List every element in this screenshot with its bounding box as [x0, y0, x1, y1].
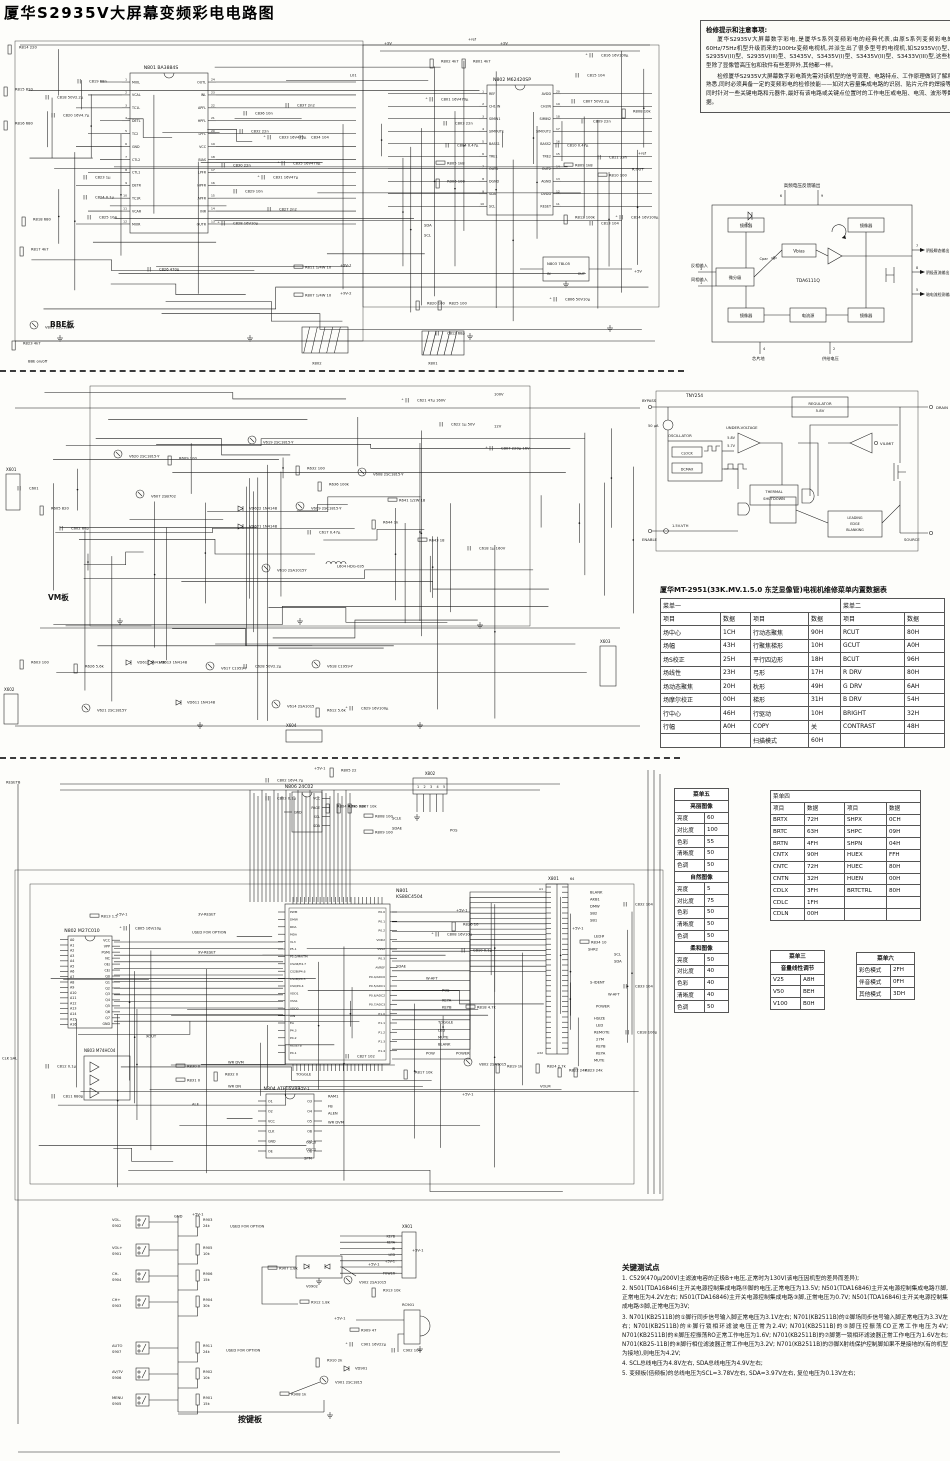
junction-dot — [570, 998, 572, 1000]
wire — [796, 510, 828, 523]
table-cell: A0H — [721, 720, 751, 734]
wire — [32, 323, 36, 327]
schematic-label: 反相输入 — [691, 262, 709, 269]
schematic-label: V607 2SB702 — [151, 494, 176, 498]
schematic-label: 5.7V — [727, 444, 735, 448]
schematic-label: R817 4k7 — [31, 247, 49, 251]
inverter-symbol — [90, 1088, 99, 1098]
pin-number: 16 — [211, 181, 215, 185]
table-cell: 40 — [705, 989, 729, 1001]
table-cell: 50 — [705, 918, 729, 930]
schematic-label: R802 4k7 — [441, 59, 459, 63]
schematic-label: TOGGLE — [437, 1020, 454, 1024]
pin-name: VSS1 — [290, 999, 298, 1003]
schematic-label: XOUT — [146, 1034, 157, 1038]
button-ref: S901 — [112, 1252, 121, 1256]
wire — [360, 470, 364, 474]
schematic-label: L01 — [350, 73, 357, 77]
resistor-symbol — [452, 922, 455, 931]
schematic-label: V902 2SA1015 — [359, 1280, 387, 1284]
table-column-header: 数据 — [887, 802, 921, 814]
connector-body — [6, 474, 20, 510]
pin-number: 5 — [916, 288, 918, 292]
pin-name: MDA — [290, 932, 298, 936]
table-cell: 80H — [887, 885, 921, 897]
schematic-label: R605 820 — [51, 506, 69, 510]
terminal — [648, 529, 651, 532]
schematic-label: +5V — [634, 269, 642, 273]
schematic-label: USED FOR OPTION — [192, 930, 227, 934]
schematic-label: +5V-1 — [334, 1316, 345, 1320]
resistor-symbol — [598, 173, 607, 176]
resistor-symbol — [296, 466, 299, 475]
table-cell: 场S校正 — [661, 653, 721, 667]
resistor-symbol — [622, 109, 625, 118]
connector-label: X601 — [6, 467, 17, 472]
table-cell: 梯形 — [751, 693, 809, 707]
junction-dot — [495, 189, 497, 191]
diode-symbol — [304, 1264, 309, 1269]
junction-dot — [434, 181, 436, 183]
test-point-item: 1. C529(470μ/200V)主滤波电容的正极B+电压,正常时为130V(… — [622, 1275, 948, 1284]
diode-symbol — [126, 660, 131, 665]
pin-number: 13 — [211, 219, 215, 223]
pin-name: Q5 — [105, 1004, 110, 1008]
schematic-label: R806 100 — [447, 179, 465, 183]
schematic-label: R907 1.8k — [279, 1266, 299, 1270]
junction-dot — [637, 207, 639, 209]
schematic-label: C807 50V2.2μ — [583, 99, 610, 103]
schematic-label: MUTE — [438, 1035, 449, 1039]
pushbutton-contact — [138, 1371, 140, 1373]
pin-name: VCC — [103, 938, 111, 942]
wire — [392, 956, 546, 1030]
ic-notch — [85, 936, 95, 941]
pin-name: RESET — [540, 205, 552, 209]
pin-name: A13 — [70, 1007, 76, 1011]
schematic-label: POW — [426, 1051, 435, 1055]
table-row: 菜单六 — [857, 953, 915, 965]
table-row: 对比度75 — [675, 895, 729, 907]
pushbutton-contact — [138, 1397, 140, 1399]
schematic-label: C806 50V10μ — [565, 297, 591, 301]
schematic-label: R814 220 — [19, 45, 37, 49]
table-cell: 扫描模式 — [751, 734, 809, 748]
table-cell: 32H — [905, 707, 945, 721]
wire — [319, 327, 325, 353]
pin-number: 5 — [443, 785, 445, 789]
schematic-label: +5V-1 — [412, 1248, 423, 1252]
pin-name: APFL — [198, 106, 206, 110]
junction-dot — [120, 194, 122, 196]
table-cell: CONTRAST — [841, 720, 905, 734]
schematic-label: R831 0 — [187, 1078, 201, 1082]
pin-name: Q7 — [105, 1016, 110, 1020]
table-cell: 48H — [905, 720, 945, 734]
schematic-label: C628 50V2.2μ — [255, 664, 282, 668]
pin-number: 2 — [482, 102, 484, 106]
test-point-item: 2. N501(TDA16846)主开关电源控制集成电路⑭脚的电压,正常电压为1… — [622, 1285, 948, 1312]
schematic-label: 供给电压 — [822, 355, 839, 362]
table-cell: 72H — [805, 861, 845, 873]
schematic-label: V901 2SC1815 — [335, 1380, 363, 1384]
wire — [423, 331, 429, 355]
pushbutton-contact — [138, 1252, 140, 1254]
resistor-symbol — [196, 1368, 199, 1379]
table-column-header: 项目 — [845, 802, 887, 814]
schematic-label: +5V-1 — [368, 1262, 379, 1266]
schematic-label: +9V-2 — [340, 291, 351, 295]
wire — [66, 439, 585, 446]
pin-name: GND — [268, 1139, 276, 1143]
pin-number: 5 — [482, 139, 484, 143]
table-cell: 96H — [905, 653, 945, 667]
schematic-label: OSC0 — [306, 1140, 317, 1144]
pin-name: O6 — [307, 1129, 312, 1133]
tda6111-block-diagram: 高频电压反馈输出697V镜像器镜像器Vbias微分级镜像器电流源镜像器TDA61… — [690, 180, 950, 368]
resistor-symbol — [462, 59, 465, 68]
pin-name: A0 — [70, 938, 74, 942]
schematic-label: R808 10k — [633, 109, 651, 113]
table-cell: 亮度 — [675, 883, 705, 895]
junction-dot — [419, 531, 421, 533]
button-name: AV/TV — [112, 1370, 123, 1374]
schematic-label: C629 16V100μ — [361, 706, 389, 710]
schematic-label: C901 16V22μ — [361, 1342, 387, 1346]
table-group-header: 柔和图像 — [675, 942, 729, 954]
test-points-title: 关键测试点 — [622, 1262, 948, 1273]
service-menu-data-table: 厦华MT-2951(33K.MV.1.5.0 东芝显像管)电视机维修菜单内置数据… — [660, 585, 948, 748]
component-body — [296, 1256, 342, 1278]
schematic-label: R809 100 — [375, 830, 393, 834]
resistor-symbol — [280, 1392, 289, 1395]
table-cell: HUEX — [845, 849, 887, 861]
pin-number: 9 — [821, 194, 823, 198]
schematic-label: V608 2SC1815-Y — [373, 472, 404, 476]
table-cell: 18H — [809, 653, 841, 667]
schematic-label: VOLM — [540, 1084, 551, 1088]
schematic-label: V620 2SC1815-Y — [129, 454, 160, 458]
resistor-symbol — [316, 1358, 319, 1367]
table-cell: 100 — [705, 824, 729, 836]
pin-name: KEYB — [386, 1235, 395, 1239]
pin-name: XIN — [290, 1014, 295, 1018]
ic-notch — [285, 1094, 295, 1099]
resistor-symbol — [8, 45, 11, 54]
wire — [78, 1021, 359, 1034]
pin-name: TC2 — [131, 132, 138, 136]
table-cell — [841, 734, 905, 748]
resistor-symbol — [196, 1216, 199, 1227]
table-row: 清晰度50 — [675, 847, 729, 859]
table-cell: 色彩 — [675, 836, 705, 848]
schematic-label: +5V-1 — [192, 1212, 203, 1216]
pin-name: A6 — [70, 970, 74, 974]
schematic-label: R807 1/4W 10 — [305, 293, 332, 297]
page-title: 厦华S2935V大屏幕变频彩电电路图 — [4, 2, 275, 23]
pin-name: CH1 IN — [489, 105, 501, 109]
resistor-symbol — [564, 215, 567, 224]
table-column-header: 项目 — [771, 802, 805, 814]
table-cell: 49H — [809, 680, 841, 694]
wire — [142, 1370, 146, 1378]
pin-number: 6 — [125, 142, 127, 146]
inverter-symbol — [90, 1062, 99, 1072]
table-cell: A8H — [801, 974, 825, 986]
pin-name: P1.0 — [378, 1012, 385, 1016]
table-cell: 10H — [809, 639, 841, 653]
table-row: 项目数据项目数据 — [771, 802, 921, 814]
clock-waveform — [704, 446, 720, 451]
wire — [322, 1378, 326, 1382]
wire — [437, 331, 443, 355]
section-divider — [0, 757, 680, 759]
and-gate — [802, 489, 814, 503]
table-cell: 行幅 — [661, 720, 721, 734]
table-cell: 00H — [805, 908, 845, 920]
schematic-label: POWER — [596, 1004, 610, 1008]
pin-name: A14 — [70, 1012, 76, 1016]
resistor-symbol — [364, 830, 373, 833]
resistor-symbol — [330, 768, 333, 777]
schematic-label: OUT — [578, 272, 586, 276]
pin-name: GND — [294, 810, 302, 814]
table-cell: 色彩 — [675, 977, 705, 989]
pin-name: P0.2 — [378, 929, 385, 933]
test-point-item: 3. N701(KB2511B)的①脚行同步信号输入脚正常电压为3.1V左右; … — [622, 1314, 948, 1360]
pin-name: MIXR — [132, 222, 141, 226]
pin-name: SIMIN1 — [489, 117, 500, 121]
schematic-label: KEYB — [596, 1044, 606, 1048]
resistor-ref: R903 — [203, 1218, 212, 1222]
table-row: CNTC72HHUEC80H — [771, 861, 921, 873]
schematic-label: TOGGLE — [295, 1072, 312, 1076]
resistor-symbol — [536, 1064, 539, 1073]
schematic-label: R820 10 — [463, 922, 479, 926]
pin-name: A5 — [70, 964, 74, 968]
schematic-label: R609 100 — [179, 456, 197, 460]
loop-arrow — [832, 225, 846, 238]
schematic-label: C812 0.1μ — [57, 1064, 77, 1068]
schematic-label: SCL — [424, 233, 432, 237]
schematic-label: KEYA — [596, 1051, 606, 1055]
schematic-label: POWER — [456, 1051, 470, 1055]
table-cell: 场线性 — [661, 666, 721, 680]
resistor-value: 24k — [203, 1224, 211, 1228]
pin-name: IR — [392, 1247, 396, 1251]
pin-name: HPFL — [198, 119, 206, 123]
schematic-label: USED FOR OPTION — [226, 1348, 261, 1352]
schematic-label: R824 2.7k — [547, 1064, 567, 1068]
schematic-label: +ref — [638, 151, 647, 155]
table-cell: 32H — [805, 873, 845, 885]
pin-number: 2 — [125, 90, 127, 94]
schematic-label: MUTE — [594, 1058, 605, 1062]
schematic-label: R825 100 — [449, 301, 467, 305]
tny254-block-diagram: TNY254BYPASSDRAINREGULATOR5.8V50 μAUNDER… — [642, 385, 948, 565]
table-cell: 行动态聚焦 — [751, 626, 809, 640]
pin-name: A1 — [539, 887, 543, 891]
resistor-symbol — [90, 914, 99, 917]
wire — [166, 301, 343, 321]
pin-number: 8 — [482, 177, 484, 181]
wire — [31, 260, 254, 271]
wire — [274, 702, 278, 706]
resistor-symbol — [436, 179, 439, 188]
table-cell: 清晰度 — [675, 918, 705, 930]
schematic-label: + — [119, 925, 122, 929]
wire — [754, 250, 782, 277]
table-title: 菜单四 — [771, 791, 921, 803]
schematic-label: V619 2SC1815-Y — [263, 440, 294, 444]
resistor-symbol — [350, 1328, 359, 1331]
schematic-label: R643 18 — [429, 538, 445, 542]
bbe-board-schematic: N801 BA3884S1MIXL2VCAL3TC1L4DETL5TC26GND… — [0, 35, 688, 375]
table-cell: 场幅 — [661, 639, 721, 653]
pin-name: OUT1 — [489, 167, 498, 171]
schematic-label: 27M — [596, 1037, 604, 1041]
pin-number: 4 — [125, 116, 127, 120]
table-row: 对比度100 — [675, 824, 729, 836]
table-cell: R DRV — [841, 666, 905, 680]
pin-name: PAGE — [311, 806, 320, 810]
table-row: BRTX72HSHPX0CH — [771, 814, 921, 826]
pin-number: 2 — [424, 785, 426, 789]
table-cell: 1CH — [721, 626, 751, 640]
pin-name: BASS1 — [489, 142, 500, 146]
wire — [760, 443, 782, 485]
schematic-label: BBE on/off — [28, 359, 48, 363]
pin-name: O3 — [307, 1099, 312, 1103]
table-cell: 其他模式 — [857, 988, 891, 1000]
schematic-label: 12V — [494, 424, 502, 428]
wire — [334, 327, 340, 353]
table-cell: 00H — [721, 693, 751, 707]
table-cell: 50 — [705, 859, 729, 871]
table-cell: V50 — [771, 986, 801, 998]
pushbutton-symbol — [136, 1342, 149, 1354]
schematic-label: R805 1k8 — [447, 161, 465, 165]
pin-number: 10 — [123, 194, 127, 198]
table-cell: 1FH — [805, 897, 845, 909]
schematic-label: W-AFT — [426, 976, 438, 980]
resistor-symbol — [20, 660, 23, 669]
comparator — [850, 433, 872, 453]
resistor-ref: R905 — [203, 1246, 212, 1250]
schematic-label: +5V-1 — [456, 908, 467, 912]
resistor-symbol — [372, 520, 375, 529]
schematic-label: RESETB — [6, 780, 21, 784]
pushbutton-symbol — [136, 1244, 149, 1256]
pin-number: 23 — [211, 90, 215, 94]
wire — [172, 629, 312, 646]
wire — [304, 327, 310, 353]
diagram-frame — [656, 391, 918, 551]
pin-name: P0.7/ADC3 — [369, 1003, 385, 1007]
table-row: CDLX3FHBRTCTRL80H — [771, 885, 921, 897]
table-cell: HUEN — [845, 873, 887, 885]
table-cell: 00H — [887, 873, 921, 885]
pin-name: A7 — [70, 975, 74, 979]
pin-name: O1 — [268, 1099, 273, 1103]
schematic-label: V617 C1959-Y — [221, 666, 248, 670]
table-column-header: 数据 — [721, 612, 751, 626]
pin-name: CLK — [268, 1129, 275, 1133]
pin-name: P0.5/ADC1 — [369, 984, 385, 988]
wire — [722, 469, 738, 489]
schematic-label: C810 0.47μ — [567, 143, 589, 147]
table-cell: 行聚焦梯形 — [751, 639, 809, 653]
table-cell: RCUT — [841, 626, 905, 640]
pin-number: 4 — [437, 785, 439, 789]
schematic-label: 芯片地 — [752, 355, 765, 362]
resistor-symbol — [294, 293, 303, 296]
block-label: 镜像器 — [860, 312, 873, 319]
pin-name: APFR — [198, 196, 207, 200]
pin-name: A10 — [70, 991, 76, 995]
inverter-symbol — [90, 1075, 99, 1085]
resistor-symbol — [12, 341, 15, 350]
table-cell: SHPX — [845, 814, 887, 826]
table-row: 亮丽图像 — [675, 800, 729, 812]
wire — [142, 1272, 146, 1280]
resistor-symbol — [416, 301, 419, 310]
junction-dot — [282, 467, 284, 469]
wire — [142, 1246, 146, 1254]
schematic-label: R830 0 — [187, 1064, 201, 1068]
wire — [84, 570, 533, 579]
board-label: BBE板 — [50, 319, 75, 329]
button-name: VOL+ — [112, 1246, 123, 1250]
schematic-label: R603 100 — [31, 660, 49, 664]
table-row: BRTN4FHSHPN04H — [771, 838, 921, 850]
pushbutton-contact — [138, 1350, 140, 1352]
schematic-label: SCLE — [392, 816, 402, 820]
table-row: CDLN00H — [771, 908, 921, 920]
schematic-label: VD611 1N4148 — [187, 700, 216, 704]
pushbutton-symbol — [136, 1216, 149, 1228]
table-cell: CNTX — [771, 849, 805, 861]
table-cell: 31H — [809, 693, 841, 707]
connector-label: X603 — [600, 639, 611, 644]
pin-number: 12 — [123, 219, 127, 223]
comparator — [738, 433, 760, 453]
pin-name: O5 — [307, 1119, 312, 1123]
button-ref: S902 — [112, 1224, 121, 1228]
pin-number: 8 — [916, 266, 918, 270]
pin-number: 9 — [125, 181, 127, 185]
junction-dot — [74, 220, 76, 222]
pin-name: LPFR — [198, 171, 207, 175]
junction-dot — [633, 539, 635, 541]
schematic-label: + — [263, 134, 266, 138]
pin-number: 64 — [570, 877, 574, 881]
schematic-label: +5V-1 — [116, 912, 127, 916]
wire — [392, 940, 546, 1001]
wire — [342, 1267, 356, 1276]
table-cell: 09H — [887, 826, 921, 838]
table-row: 扫描模式60H — [661, 734, 945, 748]
table-row: BRTC63HSHPC09H — [771, 826, 921, 838]
schematic-label: KEYB — [442, 1005, 452, 1009]
pin-name: Q4 — [105, 998, 110, 1002]
table-cell: 场摩尔校正 — [661, 693, 721, 707]
table-cell: BRTCTRL — [845, 885, 887, 897]
pin-name: VCC — [313, 797, 321, 801]
table-cell: BRTN — [771, 838, 805, 850]
junction-dot — [631, 972, 633, 974]
table-cell: 50 — [705, 906, 729, 918]
